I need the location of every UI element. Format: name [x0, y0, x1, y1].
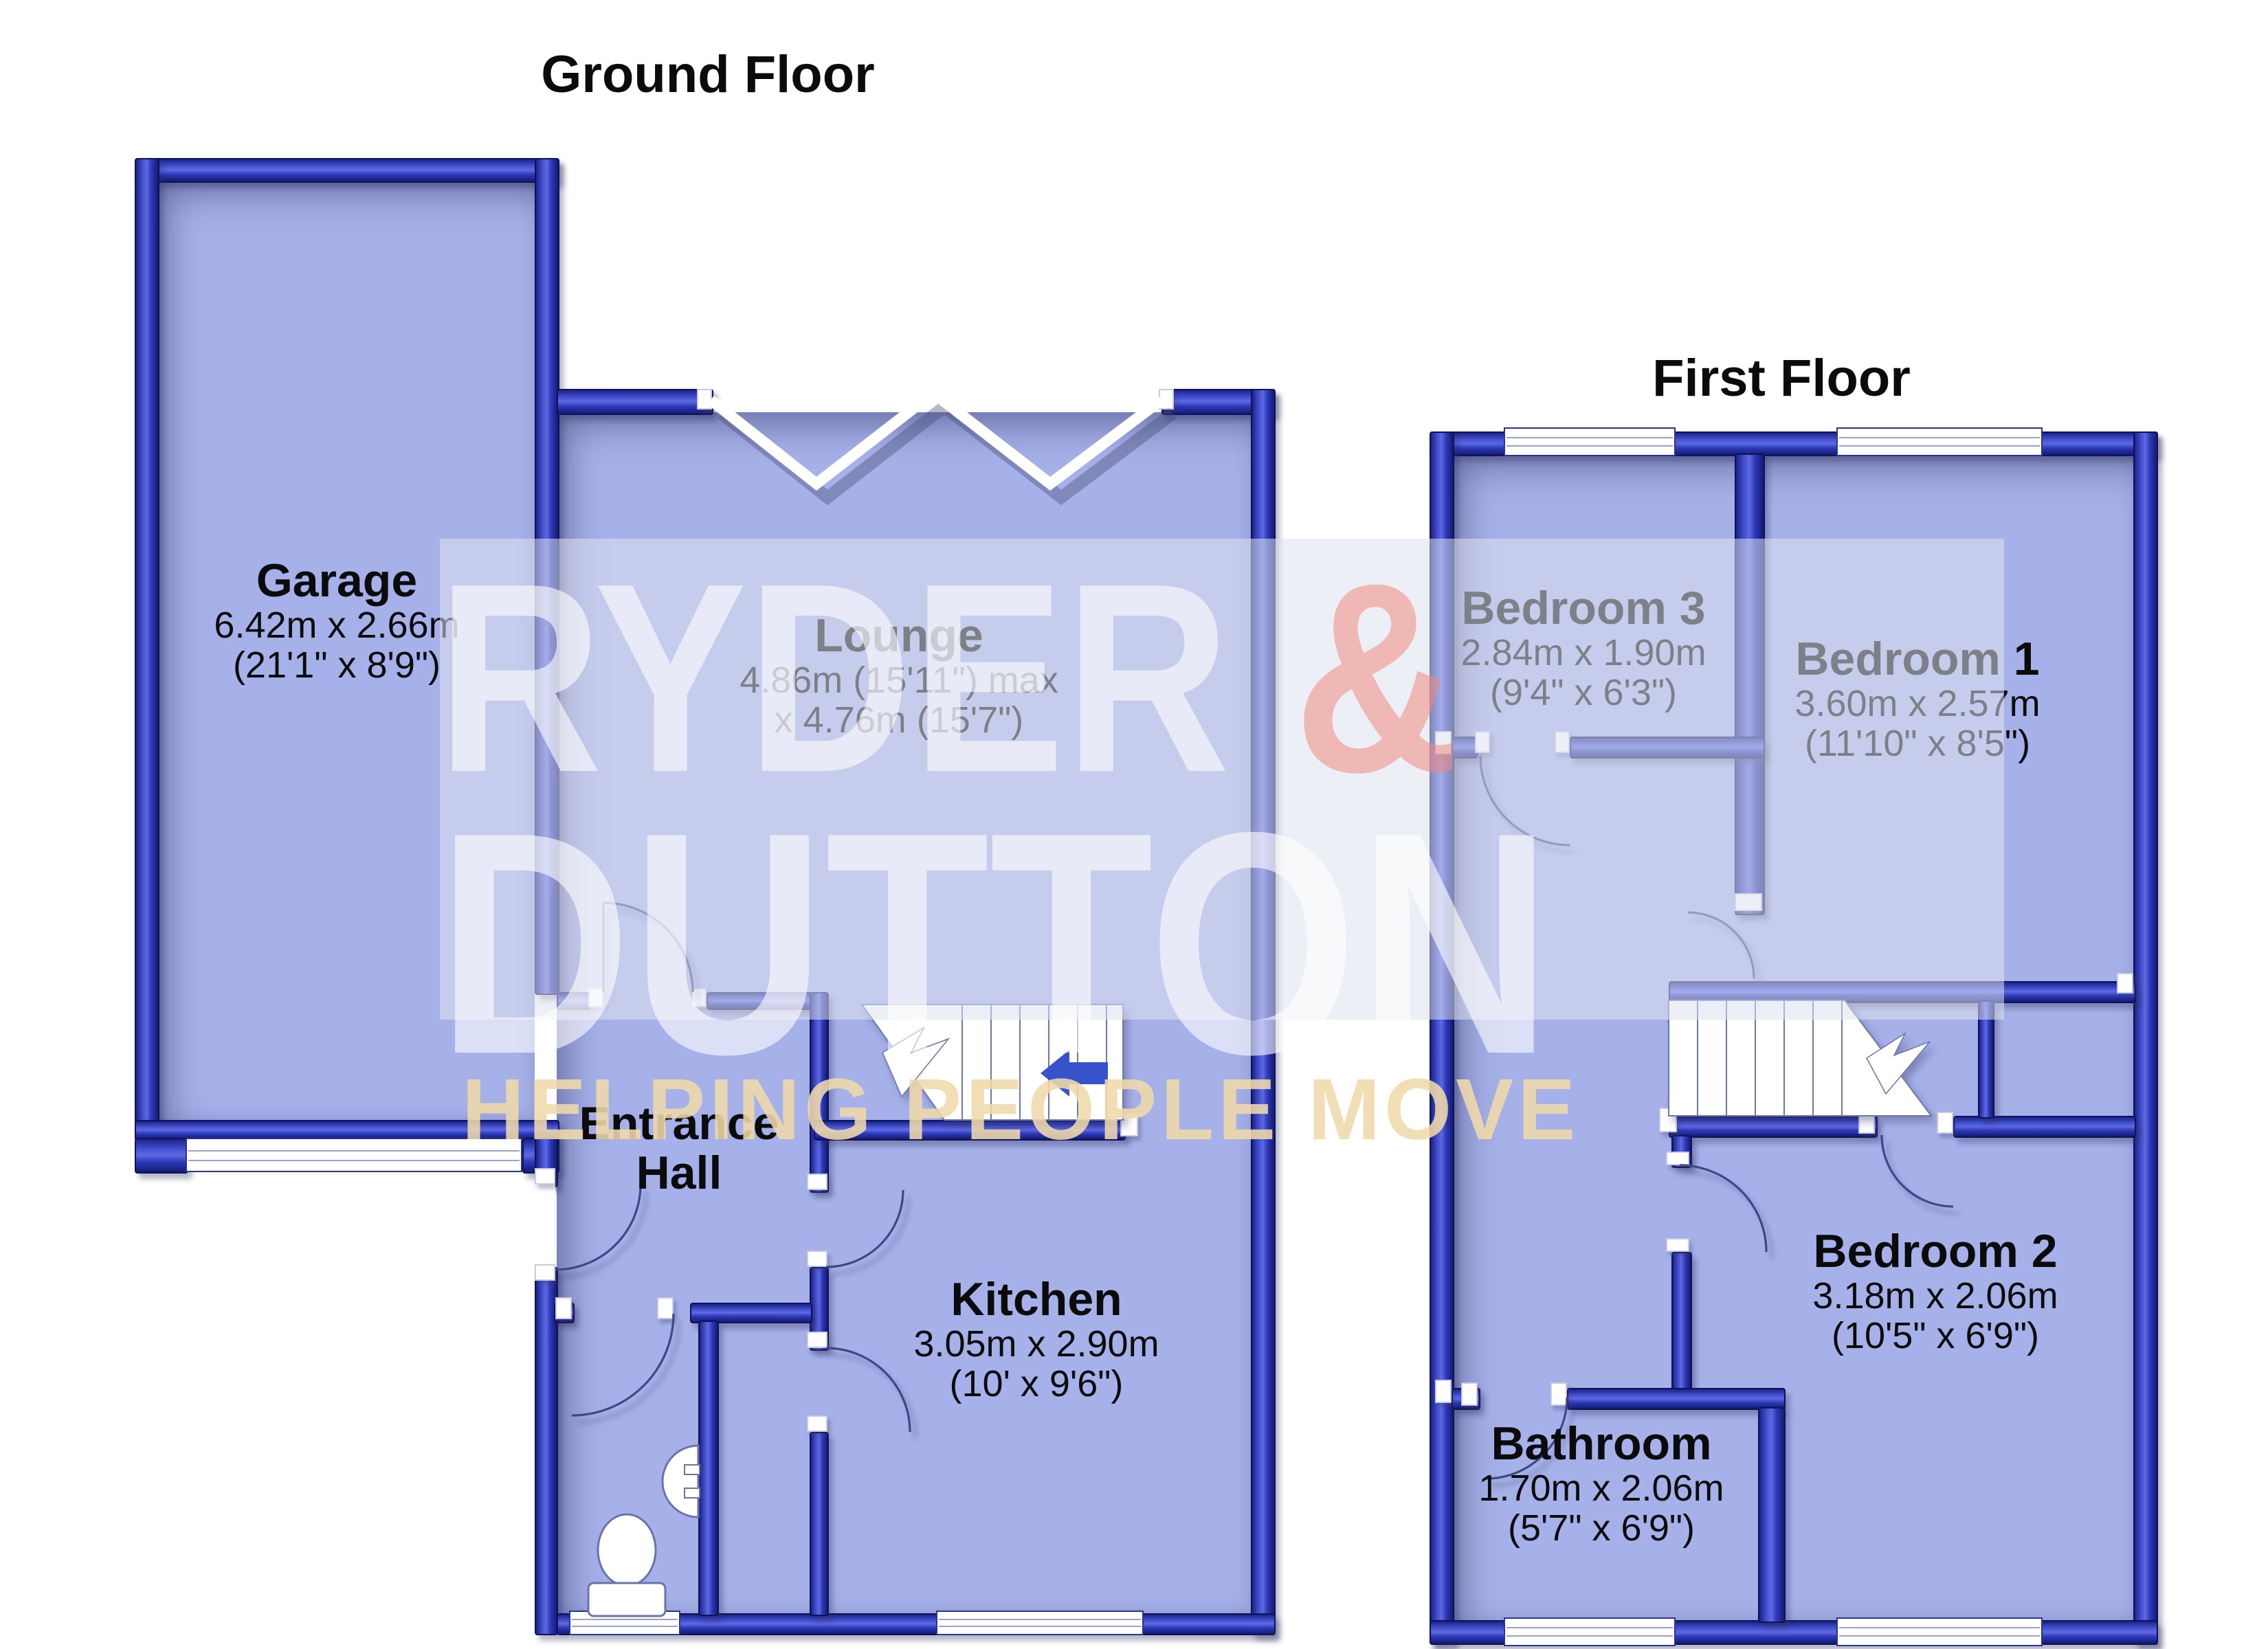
room-dim-imperial: (5'7" x 6'9"): [1436, 1509, 1766, 1549]
room-name: Bathroom: [1436, 1420, 1766, 1469]
room-name: Bedroom 2: [1770, 1227, 2100, 1277]
watermark-line2: DUTTON: [437, 786, 1552, 1102]
basin-icon: [663, 1446, 698, 1517]
kitchen-label: Kitchen 3.05m x 2.90m (10' x 9'6"): [865, 1275, 1208, 1404]
basin-tap-icon: [685, 1488, 700, 1498]
toilet-icon: [598, 1514, 656, 1586]
room-dim-imperial: (10' x 9'6"): [865, 1365, 1208, 1404]
kitchen-door-arc: [826, 1190, 903, 1267]
bathroom-label: Bathroom 1.70m x 2.06m (5'7" x 6'9"): [1436, 1420, 1766, 1549]
cupboard-door-arc: [1882, 1135, 1953, 1207]
wc-fixtures: [588, 1446, 700, 1616]
bedroom2-label: Bedroom 2 3.18m x 2.06m (10'5" x 6'9"): [1770, 1227, 2100, 1356]
room-dim-metric: 3.18m x 2.06m: [1770, 1277, 2100, 1316]
basin-tap-icon: [685, 1465, 700, 1474]
room-dim-metric: 3.05m x 2.90m: [865, 1325, 1208, 1365]
toilet-cistern-icon: [588, 1583, 665, 1616]
floorplan-canvas: Ground Floor First Floor: [0, 0, 2268, 1649]
room-dim-metric: 1.70m x 2.06m: [1436, 1469, 1766, 1509]
room-name: Kitchen: [865, 1275, 1208, 1325]
bay-window-zigzag: [711, 393, 1172, 497]
wc-door-arc: [572, 1314, 674, 1415]
room-dim-imperial: (10'5" x 6'9"): [1770, 1316, 2100, 1356]
bedroom2-door-arc: [1680, 1165, 1766, 1252]
watermark-tagline: HELPING PEOPLE MOVE: [462, 1061, 1579, 1160]
